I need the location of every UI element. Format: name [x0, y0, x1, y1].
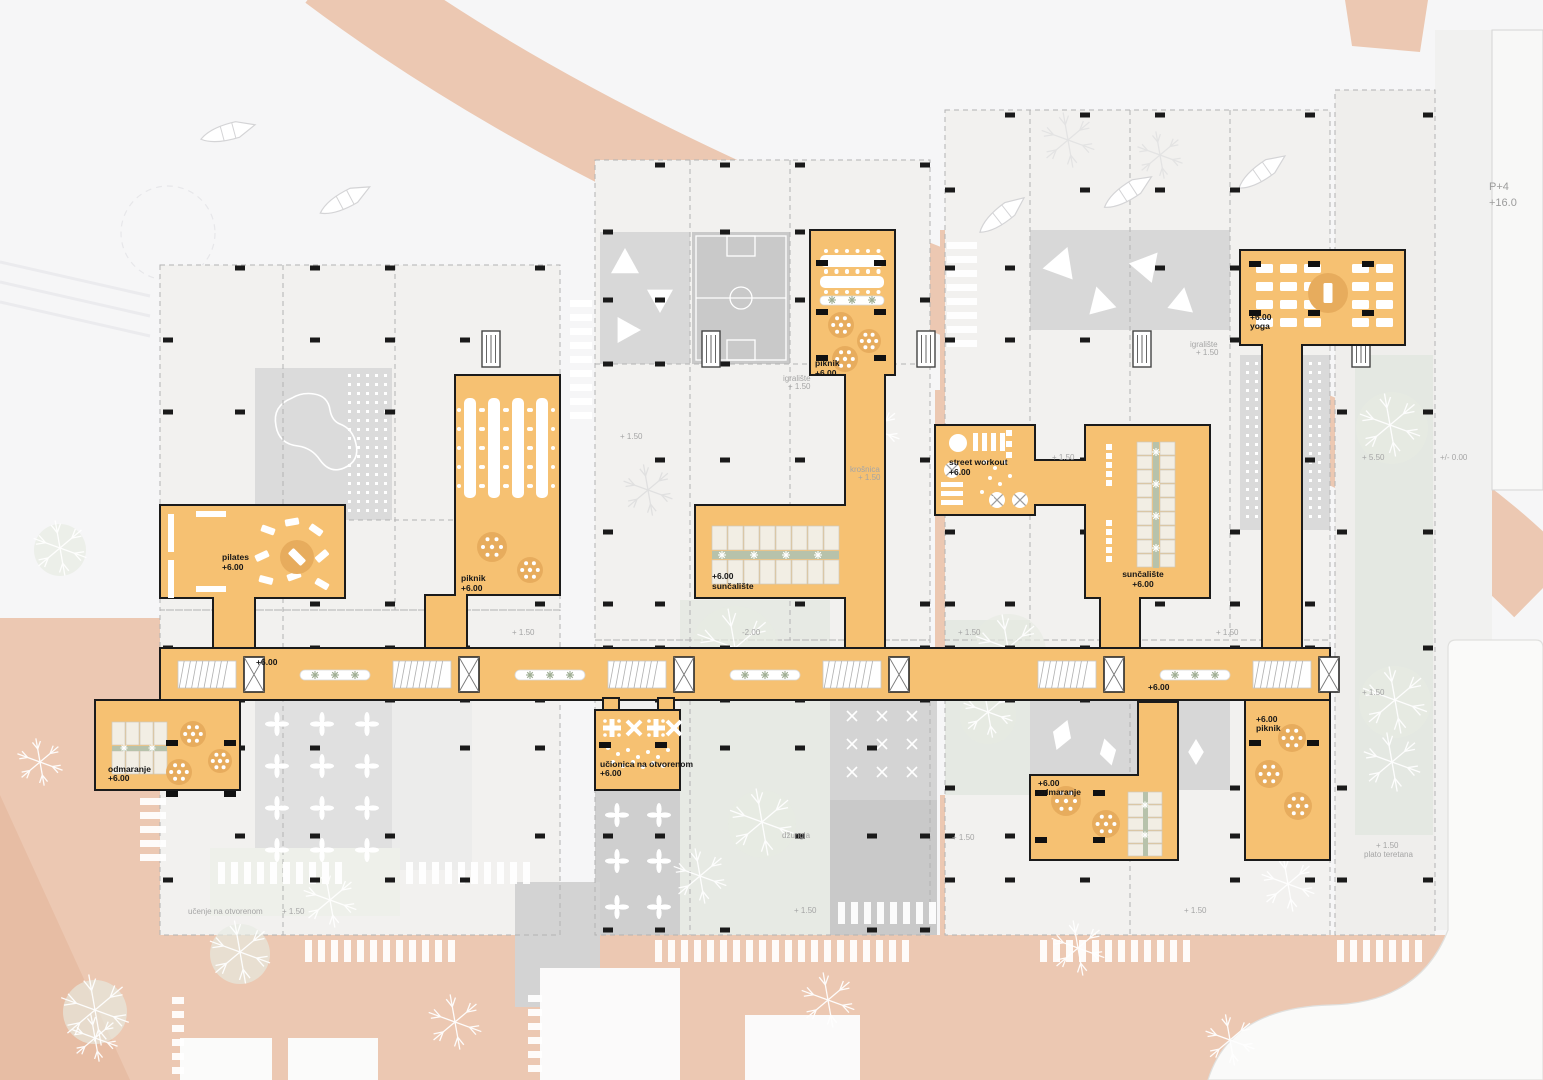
column-marker: [235, 834, 245, 839]
dot-mark: [1309, 434, 1312, 437]
crosswalk-stripe: [270, 862, 277, 884]
step: [1106, 471, 1112, 477]
column-marker: [163, 410, 173, 415]
entry-stub: [816, 260, 828, 266]
dot-mark: [357, 500, 360, 503]
crosswalk-stripe: [435, 940, 442, 962]
label-elev: + 1.50: [788, 382, 811, 391]
dot-mark: [348, 437, 351, 440]
label-elev: + 1.50: [952, 833, 975, 842]
column-marker: [945, 188, 955, 193]
column-marker: [1337, 410, 1347, 415]
stair-core-icon: [1133, 331, 1151, 367]
table-dot: [191, 732, 195, 736]
column-marker: [235, 410, 245, 415]
crosswalk-stripe: [570, 300, 592, 307]
column-marker: [535, 266, 545, 271]
column-marker: [795, 602, 805, 607]
stairs-body: [823, 661, 881, 688]
chair-dot: [1300, 797, 1304, 801]
crosswalk-stripe: [1066, 940, 1073, 962]
column-marker: [385, 338, 395, 343]
chair-dot: [845, 249, 849, 253]
dot-mark: [375, 446, 378, 449]
dot-mark: [1246, 398, 1249, 401]
lounger: [1137, 498, 1152, 511]
column-marker: [1230, 338, 1240, 343]
chair-dot: [1263, 765, 1267, 769]
chair-dot: [529, 446, 533, 450]
label-elev: + 1.50: [512, 628, 535, 637]
panel-a2: [392, 700, 472, 870]
dot-mark: [1246, 452, 1249, 455]
yoga-mat: [1280, 264, 1297, 273]
crosswalk-stripe: [733, 940, 740, 962]
label-elev: + 1.50: [1376, 841, 1399, 850]
chair-dot: [1096, 822, 1100, 826]
site-plan: pilates +6.00 piknik +6.00 piknik +6.00 …: [0, 0, 1543, 1080]
crosswalk-stripe: [655, 940, 662, 962]
chair-dot: [856, 290, 860, 294]
chair-dot: [529, 484, 533, 488]
dot-mark: [1246, 461, 1249, 464]
column-marker: [603, 928, 613, 933]
dot-mark: [348, 455, 351, 458]
column-marker: [720, 163, 730, 168]
dot-mark: [357, 473, 360, 476]
chair-dot: [877, 249, 881, 253]
bench: [196, 511, 226, 517]
dot-mark: [384, 482, 387, 485]
column-marker: [1337, 878, 1347, 883]
column-marker: [1423, 646, 1433, 651]
crosswalk-stripe: [570, 314, 592, 321]
plant-mark: [718, 551, 726, 559]
dot-mark: [375, 482, 378, 485]
elevator-icon: [1104, 657, 1124, 692]
entry-stub: [1362, 310, 1374, 316]
chair-dot: [173, 763, 177, 767]
dot-mark: [348, 392, 351, 395]
bar: [1000, 433, 1005, 451]
planter: [300, 670, 370, 680]
crosswalk-stripe: [370, 940, 377, 962]
column-marker: [1230, 834, 1240, 839]
dot-mark: [357, 410, 360, 413]
chair-dot: [457, 484, 461, 488]
crosswalk-stripe: [140, 854, 166, 861]
flower-mark: [274, 724, 279, 736]
stairs-body: [608, 661, 666, 688]
chair-dot: [457, 408, 461, 412]
dot-mark: [384, 500, 387, 503]
lounger: [1137, 512, 1152, 525]
seat-dot: [616, 752, 620, 756]
dot-mark: [384, 419, 387, 422]
chair-dot: [505, 427, 509, 431]
flower-mark: [274, 754, 279, 766]
label-elev: + 1.50: [958, 628, 981, 637]
column-marker: [1337, 530, 1347, 535]
step: [1106, 444, 1112, 450]
dot-mark: [1246, 434, 1249, 437]
chair-dot: [499, 545, 503, 549]
table-dot: [490, 545, 494, 549]
column-marker: [920, 834, 930, 839]
chair-dot: [529, 408, 533, 412]
seat-dot: [666, 748, 670, 752]
label-elev: + 1.50: [794, 906, 817, 915]
chair-dot: [866, 270, 870, 274]
dot-mark: [366, 383, 369, 386]
lounger: [824, 560, 839, 584]
dot-mark: [348, 419, 351, 422]
dot-mark: [1309, 470, 1312, 473]
crosswalk-stripe: [929, 902, 936, 924]
column-marker: [1155, 266, 1165, 271]
stairs-icon: [823, 661, 881, 688]
site-plan-svg: pilates +6.00 piknik +6.00 piknik +6.00 …: [0, 0, 1543, 1080]
column-marker: [720, 928, 730, 933]
dot-mark: [366, 473, 369, 476]
seat-dot: [626, 748, 630, 752]
step: [1106, 520, 1112, 526]
dot-mark: [357, 455, 360, 458]
flower-mark: [319, 808, 324, 820]
chair-dot: [1275, 772, 1279, 776]
yoga-mat: [1280, 282, 1297, 291]
dot-mark: [384, 455, 387, 458]
table-dot: [1064, 799, 1068, 803]
crosswalk-stripe: [218, 862, 225, 884]
label-elev: + 1.50: [1052, 453, 1075, 462]
building-bottom-1: [180, 1038, 272, 1080]
stair-core-icon: [482, 331, 500, 367]
column-marker: [655, 458, 665, 463]
chair-dot: [874, 339, 878, 343]
lounger: [1160, 554, 1175, 567]
column-marker: [945, 266, 955, 271]
flower-mark: [364, 712, 369, 724]
flower-mark: [319, 850, 324, 862]
dot-mark: [366, 500, 369, 503]
dot-mark: [1255, 488, 1258, 491]
chair-dot: [222, 753, 226, 757]
dot-mark: [1309, 380, 1312, 383]
yoga-mat: [1304, 318, 1321, 327]
chair-dot: [214, 765, 218, 769]
dot-mark: [1309, 362, 1312, 365]
chair-dot: [1073, 799, 1077, 803]
lounger: [154, 751, 167, 774]
dot-mark: [357, 419, 360, 422]
column-marker: [460, 746, 470, 751]
plant-mark: [1142, 832, 1149, 839]
crosswalk-stripe: [510, 862, 517, 884]
column-marker: [385, 834, 395, 839]
step: [1106, 453, 1112, 459]
chair-dot: [1060, 807, 1064, 811]
chair-dot: [603, 719, 607, 723]
crosswalk-stripe: [668, 940, 675, 962]
dot-mark: [357, 446, 360, 449]
yoga-mat: [1280, 318, 1297, 327]
dot-mark: [1246, 497, 1249, 500]
dot-mark: [366, 509, 369, 512]
crosswalk-stripe: [528, 1051, 542, 1058]
road-stub-topright: [1345, 0, 1428, 52]
chair-dot: [524, 575, 528, 579]
column-marker: [720, 362, 730, 367]
chair-dot: [866, 290, 870, 294]
column-marker: [1230, 602, 1240, 607]
table-dot: [843, 357, 847, 361]
column-marker: [1080, 878, 1090, 883]
chair-dot: [195, 739, 199, 743]
column-marker: [1005, 113, 1015, 118]
dot-mark: [348, 374, 351, 377]
column-marker: [945, 530, 955, 535]
yoga-mat: [1352, 282, 1369, 291]
entry-stub: [1308, 261, 1320, 267]
dot-mark: [366, 446, 369, 449]
table-dot: [1104, 822, 1108, 826]
chair-dot: [529, 465, 533, 469]
crosswalk-stripe: [903, 902, 910, 924]
dot-mark: [1255, 506, 1258, 509]
lounger: [808, 560, 823, 584]
column-marker: [1423, 530, 1433, 535]
dot-mark: [1255, 434, 1258, 437]
stairs-body: [1038, 661, 1096, 688]
lounger: [1160, 540, 1175, 553]
dot-mark: [1246, 407, 1249, 410]
dot-mark: [375, 509, 378, 512]
lounger: [1137, 526, 1152, 539]
chair-dot: [847, 350, 851, 354]
dot-mark: [384, 464, 387, 467]
plant-mark: [121, 745, 128, 752]
flower-mark: [656, 895, 661, 907]
crosswalk-stripe: [902, 940, 909, 962]
column-marker: [1080, 338, 1090, 343]
column-marker: [460, 878, 470, 883]
crosswalk-stripe: [140, 812, 166, 819]
chair-dot: [169, 770, 173, 774]
column-marker: [535, 602, 545, 607]
chair-dot: [617, 733, 621, 737]
lounger: [792, 526, 807, 550]
column-marker: [603, 834, 613, 839]
step: [1006, 441, 1012, 447]
step: [1106, 462, 1112, 468]
column-marker: [1423, 113, 1433, 118]
column-marker: [1230, 266, 1240, 271]
building-bottom-4: [745, 1015, 860, 1080]
label-piknik-r-name: piknik: [1256, 723, 1281, 733]
crosswalk-stripe: [570, 356, 592, 363]
dot-mark: [357, 392, 360, 395]
dot-mark: [1255, 425, 1258, 428]
lounger: [776, 526, 791, 550]
crosswalk-stripe: [172, 1067, 184, 1074]
label-piknik-left-elev: +6.00: [461, 583, 483, 593]
step: [1106, 547, 1112, 553]
yoga-mat: [1376, 264, 1393, 273]
dot-mark: [1318, 362, 1321, 365]
column-marker: [720, 746, 730, 751]
label-p4-elev: +16.0: [1489, 197, 1517, 209]
workout-ring: [949, 434, 967, 452]
lounger: [1137, 540, 1152, 553]
chair-dot: [1298, 736, 1302, 740]
crosswalk-stripe: [877, 902, 884, 924]
dot-mark: [384, 383, 387, 386]
lounger: [1160, 456, 1175, 469]
plant-mark: [782, 551, 790, 559]
chair-dot: [505, 408, 509, 412]
crosswalk-stripe: [1170, 940, 1177, 962]
entry-stub: [655, 742, 667, 748]
lounger: [1160, 470, 1175, 483]
label-suncaliste-c-elev: +6.00: [712, 571, 734, 581]
column-marker: [920, 602, 930, 607]
plant-mark: [761, 671, 769, 679]
chair-dot: [851, 357, 855, 361]
plant-mark: [1142, 802, 1149, 809]
flower-mark: [614, 907, 619, 919]
chair-dot: [1282, 736, 1286, 740]
dot-mark: [1318, 497, 1321, 500]
chair-dot: [847, 323, 851, 327]
flower-mark: [614, 861, 619, 873]
flower-mark: [614, 803, 619, 815]
lounger: [1160, 484, 1175, 497]
chair-dot: [173, 777, 177, 781]
bench-bar: [941, 500, 963, 505]
dot-mark: [1318, 407, 1321, 410]
flower-mark: [274, 796, 279, 808]
dot-mark: [1309, 398, 1312, 401]
crosswalk-stripe: [528, 995, 542, 1002]
dot-mark: [1309, 425, 1312, 428]
chair-dot: [847, 364, 851, 368]
plant-mark: [1152, 480, 1160, 488]
dot-mark: [1309, 389, 1312, 392]
entry-stub: [874, 260, 886, 266]
lounger: [744, 526, 759, 550]
elevator-icon: [674, 657, 694, 692]
chair-dot: [457, 427, 461, 431]
chair-dot: [551, 427, 555, 431]
crosswalk-stripe: [947, 270, 977, 277]
entry-stub: [1249, 740, 1261, 746]
column-marker: [1230, 188, 1240, 193]
dot-mark: [357, 383, 360, 386]
dot-mark: [1318, 488, 1321, 491]
crosswalk-stripe: [484, 862, 491, 884]
bench: [168, 560, 174, 598]
table-dot: [218, 759, 222, 763]
entry-stub: [1093, 837, 1105, 843]
plant-mark: [828, 296, 836, 304]
dot-mark: [384, 437, 387, 440]
label-corridor-elev-left: +6.00: [256, 657, 278, 667]
plant-mark: [868, 296, 876, 304]
chair-dot: [1108, 815, 1112, 819]
crosswalk-stripe: [720, 940, 727, 962]
chair-dot: [495, 553, 499, 557]
chair-dot: [1304, 804, 1308, 808]
column-marker: [795, 163, 805, 168]
chair-dot: [831, 323, 835, 327]
dot-mark: [1246, 371, 1249, 374]
column-marker: [720, 230, 730, 235]
plant-mark: [848, 296, 856, 304]
crosswalk-stripe: [172, 1053, 184, 1060]
chair-dot: [835, 249, 839, 253]
crosswalk-stripe: [851, 902, 858, 924]
crosswalk-stripe: [335, 862, 342, 884]
crosswalk-stripe: [140, 826, 166, 833]
entry-stub: [166, 791, 178, 797]
dot-mark: [1246, 506, 1249, 509]
chair-dot: [481, 427, 485, 431]
dot-mark: [375, 464, 378, 467]
dot-mark: [348, 401, 351, 404]
chair-dot: [845, 290, 849, 294]
column-marker: [1155, 113, 1165, 118]
column-marker: [310, 746, 320, 751]
crosswalk-stripe: [772, 940, 779, 962]
table-dot: [1296, 804, 1300, 808]
crosswalk-stripe: [570, 342, 592, 349]
building-bottom-2: [288, 1038, 378, 1080]
crosswalk-stripe: [838, 902, 845, 924]
column-marker: [1305, 602, 1315, 607]
plant-mark: [1152, 544, 1160, 552]
stair-core-icon: [702, 331, 720, 367]
label-elev: + 1.50: [1196, 348, 1219, 357]
stair-core-icon: [917, 331, 935, 367]
dot-mark: [375, 410, 378, 413]
crosswalk-stripe: [876, 940, 883, 962]
column-marker: [1005, 602, 1015, 607]
stairs-icon: [1038, 661, 1096, 688]
column-marker: [1080, 188, 1090, 193]
label-plato-teretana: plato teretana: [1364, 850, 1413, 859]
column-marker: [460, 338, 470, 343]
entry-stub: [599, 742, 611, 748]
crosswalk-stripe: [344, 940, 351, 962]
crosswalk-stripe: [947, 256, 977, 263]
long-table: [820, 276, 884, 288]
dot-mark: [384, 446, 387, 449]
crosswalk-stripe: [798, 940, 805, 962]
flower-mark: [656, 861, 661, 873]
chair-dot: [520, 568, 524, 572]
dot-mark: [1246, 488, 1249, 491]
crosswalk-stripe: [824, 940, 831, 962]
entry-stub: [874, 355, 886, 361]
chair-dot: [839, 364, 843, 368]
chair-dot: [824, 290, 828, 294]
dot-mark: [348, 410, 351, 413]
entry-stub: [1249, 261, 1261, 267]
step: [1106, 529, 1112, 535]
bench: [196, 586, 226, 592]
crosswalk-stripe: [1183, 940, 1190, 962]
